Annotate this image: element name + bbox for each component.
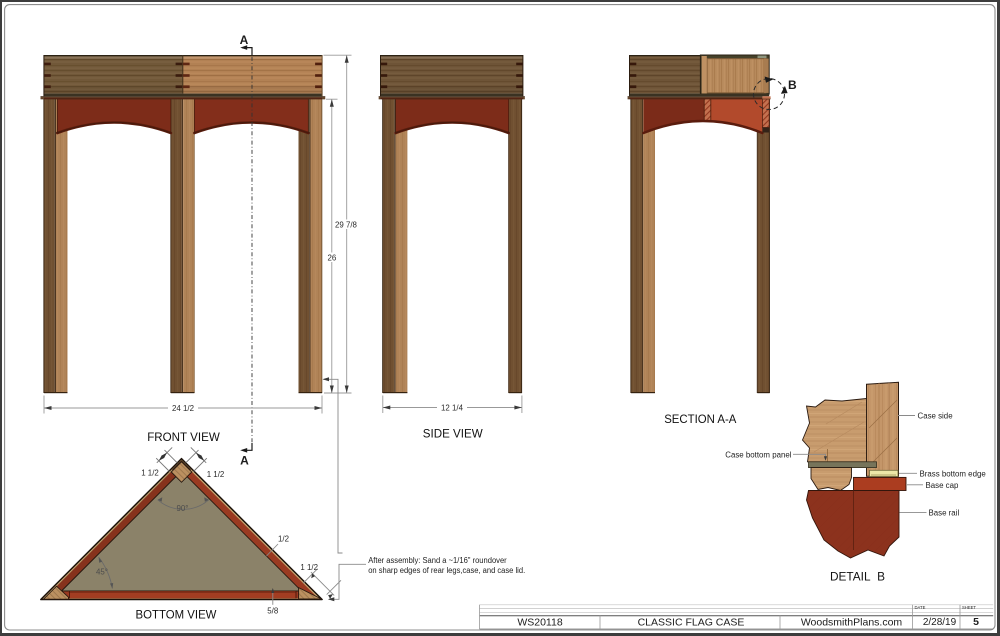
svg-text:on sharp edges of rear legs,ca: on sharp edges of rear legs,case, and ca… — [368, 566, 525, 575]
svg-text:SHEET: SHEET — [962, 605, 976, 610]
svg-text:Case bottom panel: Case bottom panel — [725, 450, 791, 459]
svg-text:SIDE VIEW: SIDE VIEW — [423, 427, 483, 441]
svg-text:DATE: DATE — [915, 605, 926, 610]
svg-text:26: 26 — [328, 254, 337, 263]
svg-text:DETAIL B: DETAIL B — [830, 570, 885, 584]
svg-text:45°: 45° — [96, 568, 108, 577]
svg-text:B: B — [788, 78, 797, 92]
svg-text:CLASSIC FLAG CASE: CLASSIC FLAG CASE — [638, 617, 745, 629]
svg-text:1/2: 1/2 — [278, 535, 289, 544]
svg-text:A: A — [240, 33, 249, 47]
svg-text:After assembly: Sand a ~1/16": After assembly: Sand a ~1/16" roundover — [368, 556, 507, 565]
svg-text:5/8: 5/8 — [267, 607, 279, 616]
svg-text:1 1/2: 1 1/2 — [207, 470, 225, 479]
svg-text:12 1/4: 12 1/4 — [441, 404, 464, 413]
svg-text:Case side: Case side — [918, 412, 954, 421]
svg-text:A: A — [240, 454, 249, 468]
svg-text:29 7/8: 29 7/8 — [335, 221, 358, 230]
svg-text:1 1/2: 1 1/2 — [141, 469, 159, 478]
svg-text:90°: 90° — [177, 504, 189, 513]
svg-text:Base cap: Base cap — [926, 481, 960, 490]
svg-text:WoodsmithPlans.com: WoodsmithPlans.com — [801, 617, 903, 629]
svg-text:2/28/19: 2/28/19 — [923, 617, 957, 628]
svg-text:SECTION A-A: SECTION A-A — [664, 412, 737, 426]
svg-text:FRONT VIEW: FRONT VIEW — [147, 430, 220, 444]
svg-text:BOTTOM VIEW: BOTTOM VIEW — [136, 607, 217, 621]
svg-text:Base rail: Base rail — [929, 509, 960, 518]
svg-text:Brass bottom edge: Brass bottom edge — [920, 469, 987, 478]
svg-text:5: 5 — [973, 616, 979, 628]
svg-text:1 1/2: 1 1/2 — [300, 563, 318, 572]
svg-text:24 1/2: 24 1/2 — [172, 404, 194, 413]
svg-text:WS20118: WS20118 — [517, 617, 562, 629]
